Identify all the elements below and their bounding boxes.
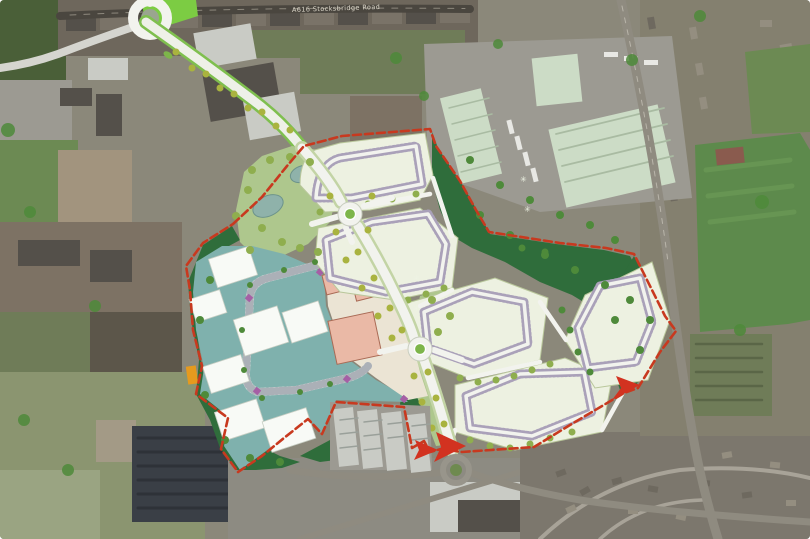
quarry-patch [58, 150, 132, 232]
housing-estate-southeast [520, 432, 810, 539]
svg-text:✳: ✳ [524, 205, 531, 214]
retained-buildings [330, 402, 432, 473]
masterplan-svg: A616 Stocksbridge Road [0, 0, 810, 539]
roundabout-2 [408, 337, 432, 361]
svg-text:✳: ✳ [413, 274, 420, 283]
industrial-works-west [0, 222, 182, 378]
svg-text:✳: ✳ [413, 304, 420, 313]
field-northeast [745, 44, 810, 134]
industrial-estate-south [228, 458, 533, 539]
playing-fields-east [695, 133, 810, 332]
allotments-patch [300, 32, 432, 94]
allotments-east [690, 334, 772, 416]
roundabout-1 [338, 202, 362, 226]
svg-text:✳: ✳ [520, 175, 527, 184]
aerial-masterplan-image: A616 Stocksbridge Road [0, 0, 810, 539]
